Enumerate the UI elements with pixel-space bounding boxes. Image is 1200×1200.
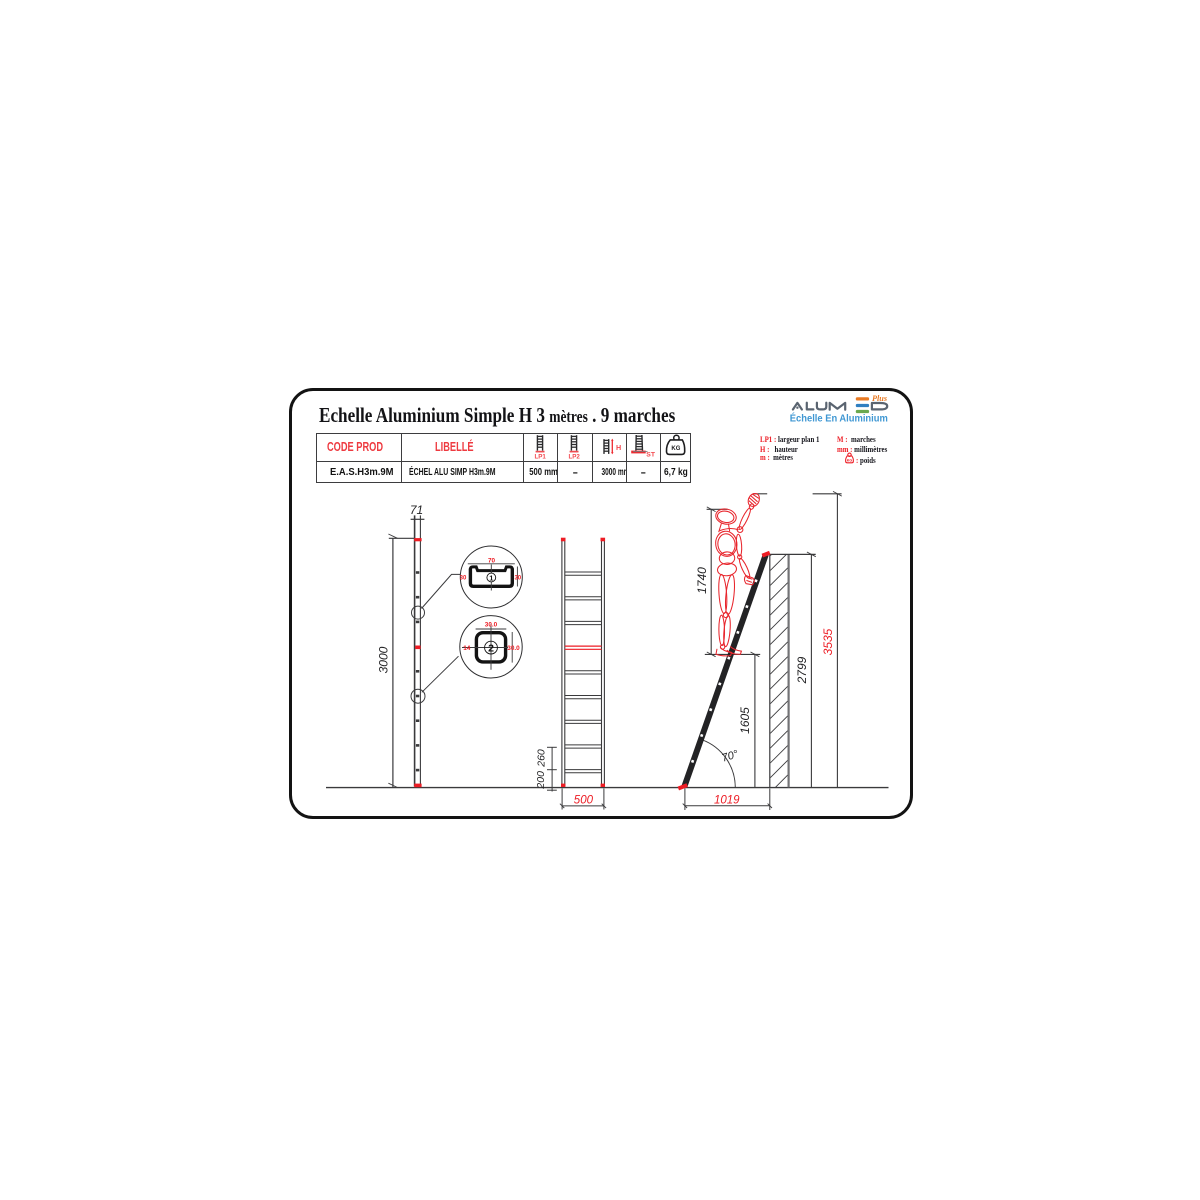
- svg-text:30: 30: [514, 576, 521, 582]
- svg-text:2799: 2799: [795, 656, 809, 684]
- svg-text:1019: 1019: [714, 794, 740, 806]
- svg-text:1: 1: [489, 573, 493, 582]
- svg-text:1605: 1605: [738, 707, 752, 734]
- svg-text:500: 500: [574, 794, 594, 806]
- svg-text:70: 70: [488, 557, 496, 564]
- svg-text:3000: 3000: [377, 646, 391, 673]
- svg-text:71: 71: [410, 503, 423, 517]
- svg-text:14: 14: [463, 645, 471, 652]
- svg-text:2: 2: [488, 643, 494, 655]
- svg-text:30.0: 30.0: [507, 645, 520, 652]
- svg-text:200: 200: [535, 771, 547, 790]
- svg-text:1740: 1740: [695, 567, 709, 594]
- svg-text:3535: 3535: [821, 628, 835, 655]
- svg-text:30: 30: [460, 576, 467, 582]
- svg-text:260: 260: [535, 749, 547, 768]
- svg-text:30.0: 30.0: [485, 622, 498, 629]
- svg-text:70°: 70°: [720, 748, 740, 765]
